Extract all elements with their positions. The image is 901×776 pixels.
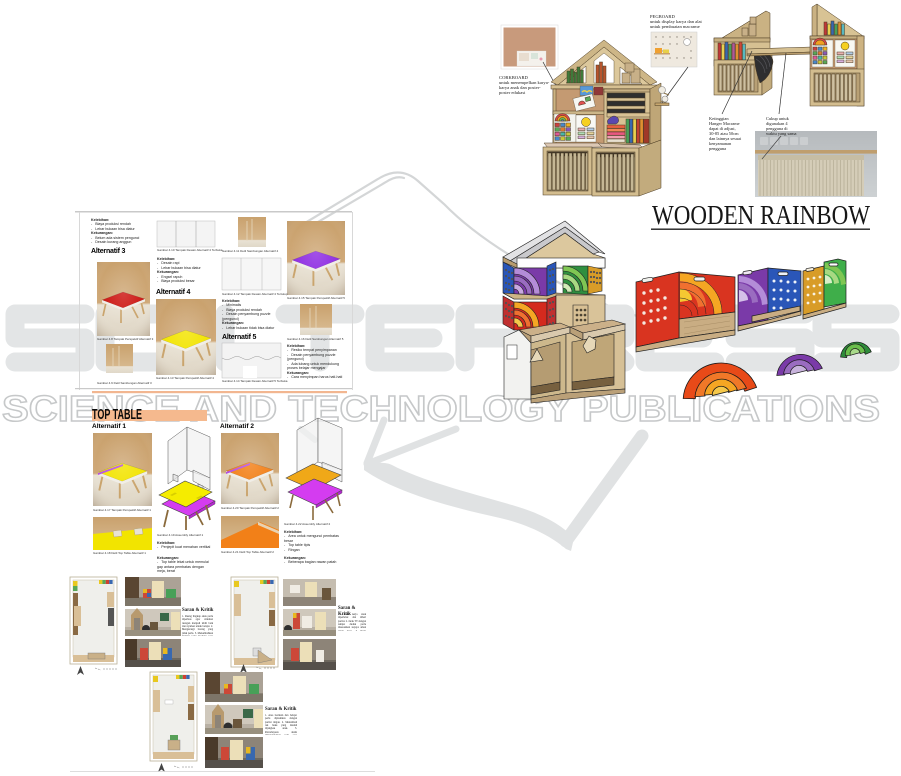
svg-text:TOP TABLE: TOP TABLE <box>92 407 142 423</box>
svg-text:WOODEN RAINBOW: WOODEN RAINBOW <box>652 200 870 230</box>
